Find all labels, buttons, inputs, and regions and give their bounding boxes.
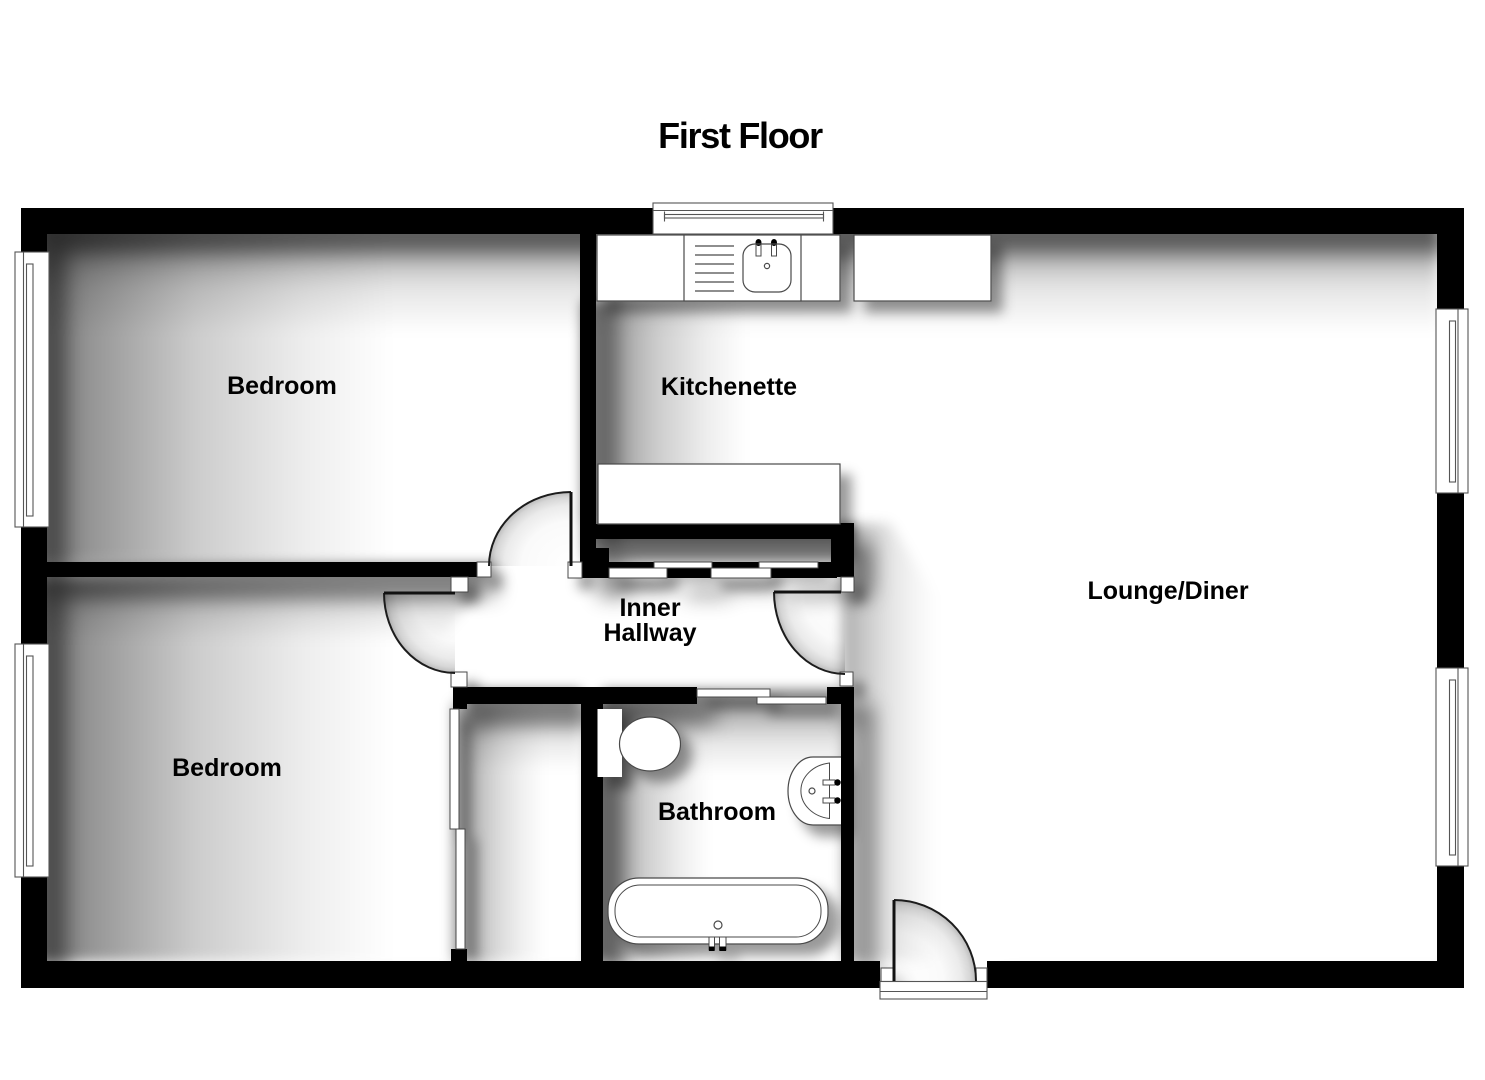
- svg-text:First Floor: First Floor: [658, 115, 823, 156]
- svg-text:Bedroom: Bedroom: [227, 372, 337, 400]
- svg-text:Hallway: Hallway: [603, 619, 696, 647]
- svg-text:Bathroom: Bathroom: [658, 798, 776, 826]
- svg-text:Lounge/Diner: Lounge/Diner: [1087, 577, 1248, 605]
- svg-text:Bedroom: Bedroom: [172, 754, 282, 782]
- svg-text:Inner: Inner: [619, 594, 680, 622]
- svg-text:Kitchenette: Kitchenette: [661, 373, 797, 401]
